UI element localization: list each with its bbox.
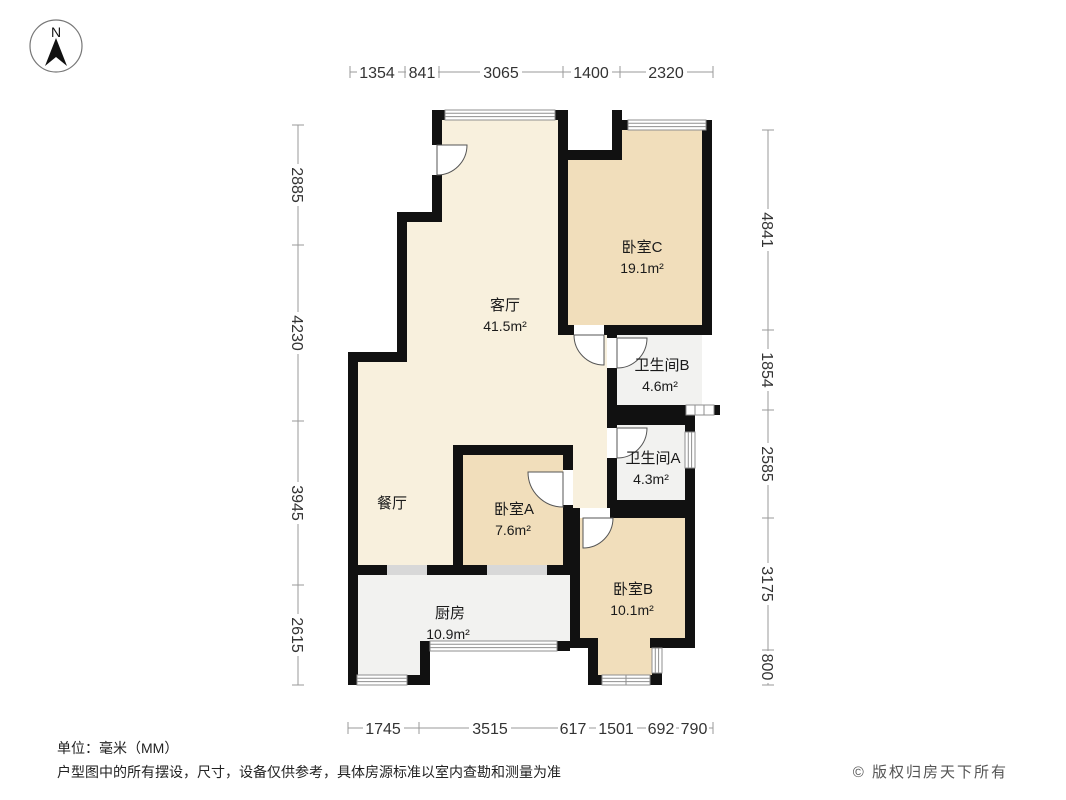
dim-top-4: 2320 [648, 65, 684, 82]
dim-top-3: 1400 [573, 65, 609, 82]
room-area-bathB: 4.6m² [642, 378, 678, 394]
dim-left-2: 3945 [288, 485, 305, 521]
dim-left-1: 4230 [288, 315, 305, 351]
room-label-living: 客厅 [490, 297, 520, 314]
dim-right-4: 800 [758, 654, 775, 681]
room-area-bedroomA: 7.6m² [495, 522, 531, 538]
room-area-bedroomB: 10.1m² [610, 602, 654, 618]
kitchen-opening [387, 565, 427, 575]
window-bedroomB-bay-bottom [602, 675, 650, 685]
room-area-bathA: 4.3m² [633, 471, 669, 487]
floorplan-page: { "compass": { "label": "N" }, "rooms": … [0, 0, 1066, 800]
dim-bottom-0: 1745 [365, 721, 401, 738]
window-bedroomB-bay-right [652, 648, 662, 673]
dim-top-2: 3065 [483, 65, 519, 82]
floor-plan-canvas: N [0, 0, 1066, 800]
room-label-bathB: 卫生间B [634, 357, 689, 374]
unit-label: 单位：毫米（MM） [57, 738, 178, 758]
compass-north-label: N [51, 24, 61, 40]
window-living-top [445, 110, 555, 120]
dim-bottom-5: 790 [681, 721, 708, 738]
dim-bottom-3: 1501 [598, 721, 634, 738]
dim-right-0: 4841 [758, 212, 775, 248]
dim-bottom-1: 3515 [472, 721, 508, 738]
disclaimer-text: 户型图中的所有摆设，尺寸，设备仅供参考，具体房源标准以室内查勘和测量为准 [57, 762, 561, 782]
room-label-bedroomA: 卧室A [494, 501, 534, 518]
window-kitchen-south [430, 641, 557, 651]
dim-left-0: 2885 [288, 167, 305, 203]
room-label-bedroomB: 卧室B [613, 581, 653, 598]
window-bathB-bottom [686, 405, 714, 415]
dim-right-3: 3175 [758, 566, 775, 602]
compass: N [30, 20, 82, 72]
dim-right-1: 1854 [758, 352, 775, 388]
room-area-living: 41.5m² [483, 318, 527, 334]
dim-top-1: 841 [409, 65, 436, 82]
window-bathA-right [685, 432, 695, 468]
dim-left-3: 2615 [288, 617, 305, 653]
room-label-kitchen: 厨房 [435, 605, 465, 622]
dim-bottom-2: 617 [560, 721, 587, 738]
copyright-text: © 版权归房天下所有 [853, 761, 1008, 782]
dim-bottom-4: 692 [648, 721, 675, 738]
room-label-dining: 餐厅 [377, 495, 407, 512]
dim-top-0: 1354 [359, 65, 395, 82]
room-bedroomB-bay-floor [598, 638, 652, 675]
dimension-left [292, 125, 304, 685]
room-label-bedroomC: 卧室C [622, 239, 663, 256]
window-bedroomC-top [628, 120, 706, 130]
dim-right-2: 2585 [758, 446, 775, 482]
room-area-bedroomC: 19.1m² [620, 260, 664, 276]
room-kitchen-bay-floor [358, 641, 420, 675]
room-area-kitchen: 10.9m² [426, 626, 470, 642]
window-kitchen-bay-bottom [357, 675, 407, 685]
kitchen-opening [487, 565, 547, 575]
room-label-bathA: 卫生间A [625, 450, 680, 467]
